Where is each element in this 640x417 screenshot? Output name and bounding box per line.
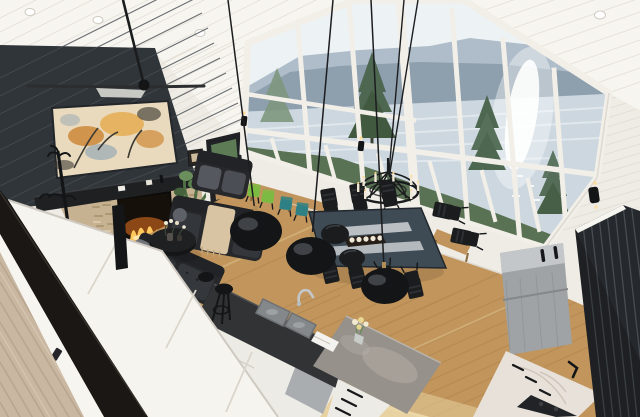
recessed-light — [595, 11, 606, 19]
lakehouse-interior-photo — [0, 0, 640, 417]
seat-cushion — [221, 170, 247, 196]
photo-stage — [0, 0, 640, 417]
mullion-sconce-icon — [357, 141, 364, 152]
recessed-light — [93, 17, 103, 24]
fan-blades — [28, 86, 204, 87]
art-blue-patch — [60, 114, 80, 126]
art-orange-foliage — [68, 126, 104, 146]
art-dark-patch — [54, 160, 74, 170]
flower-vase — [167, 233, 173, 241]
seat-cushion — [196, 164, 222, 190]
flower-vase — [177, 235, 182, 241]
bar-stool — [215, 284, 233, 295]
recessed-light — [25, 9, 35, 16]
brass-stem — [382, 262, 386, 269]
round-ottoman — [339, 249, 365, 267]
pendant-highlight — [294, 243, 313, 255]
pendant-highlight — [368, 275, 386, 286]
faucet-base — [297, 302, 301, 306]
bar-stool — [198, 272, 214, 282]
refrigerator — [500, 243, 572, 355]
fan-motor — [139, 80, 150, 91]
art-dark-patch — [137, 107, 161, 121]
pendant-highlight — [238, 218, 258, 231]
